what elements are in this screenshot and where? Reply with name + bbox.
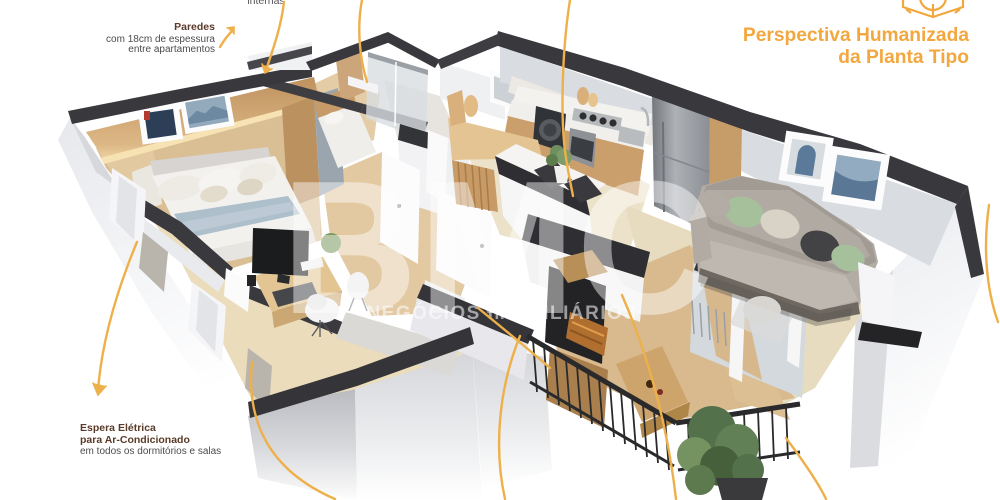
svg-text:em todos os dormitórios e sala: em todos os dormitórios e salas [80,446,221,457]
svg-text:Paredes: Paredes [174,21,215,33]
svg-text:Perspectiva Humanizada: Perspectiva Humanizada [743,25,969,46]
svg-text:da Planta Tipo: da Planta Tipo [838,47,969,68]
svg-text:para Ar-Condicionado: para Ar-Condicionado [80,434,190,446]
svg-text:Espera Elétrica: Espera Elétrica [80,422,156,434]
svg-text:internas: internas [247,0,284,7]
svg-text:entre apartamentos: entre apartamentos [128,44,215,55]
svg-text:NEGÓCIOS IMOBILIÁRIOS: NEGÓCIOS IMOBILIÁRIOS [366,302,637,324]
